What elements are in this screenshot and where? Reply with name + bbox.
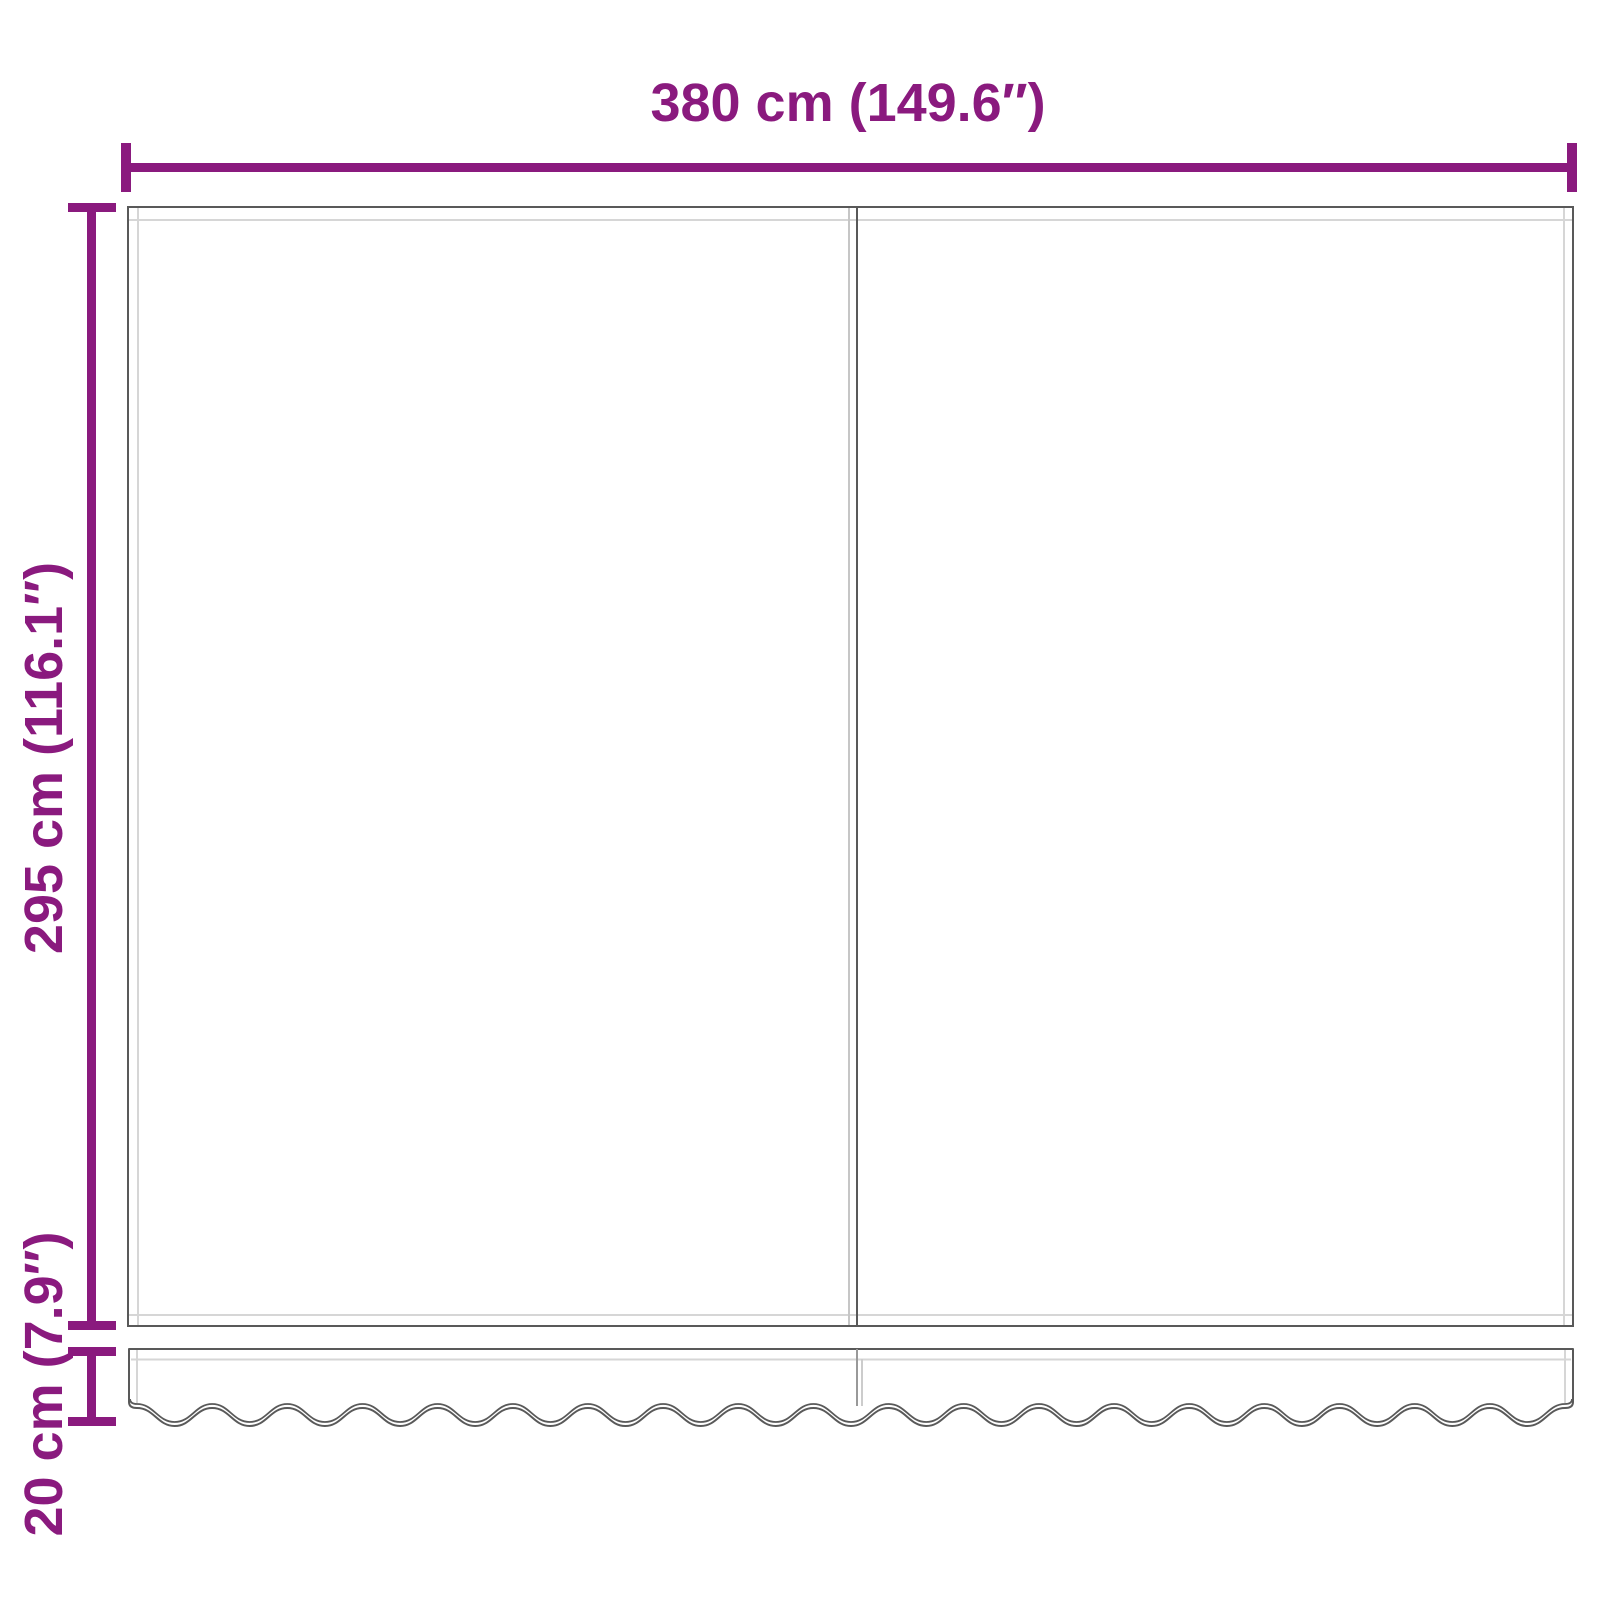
panel-center-seam-shadow: [848, 208, 850, 1325]
panel-center-seam: [856, 208, 858, 1325]
width-dimension-label: 380 cm (149.6″): [650, 76, 1045, 130]
valance-outline: [129, 1349, 1573, 1426]
valance-dimension-label: 20 cm (7.9″): [17, 1231, 71, 1536]
valance-dimension-tick-top: [68, 1347, 116, 1356]
height-dimension-label: 295 cm (116.1″): [17, 562, 71, 954]
height-dimension-tick-top: [68, 203, 116, 212]
valance-dimension-tick-bottom: [68, 1417, 116, 1426]
panel-hem-line-left: [137, 208, 139, 1325]
width-dimension-tick-left: [121, 143, 131, 192]
width-dimension-line: [125, 163, 1573, 172]
panel-hem-line-right: [1563, 208, 1565, 1325]
width-dimension-tick-right: [1567, 143, 1577, 192]
panel-hem-line-bottom: [129, 1314, 1572, 1316]
product-dimension-diagram: 380 cm (149.6″) 295 cm (116.1″) 20 cm (7…: [0, 0, 1600, 1600]
awning-fabric-panel: [127, 206, 1574, 1327]
valance-flounce: [127, 1347, 1575, 1433]
height-dimension-line: [87, 207, 96, 1324]
panel-hem-line-top: [129, 219, 1572, 221]
valance-dimension-line: [87, 1351, 96, 1421]
height-dimension-tick-bottom: [68, 1321, 116, 1330]
